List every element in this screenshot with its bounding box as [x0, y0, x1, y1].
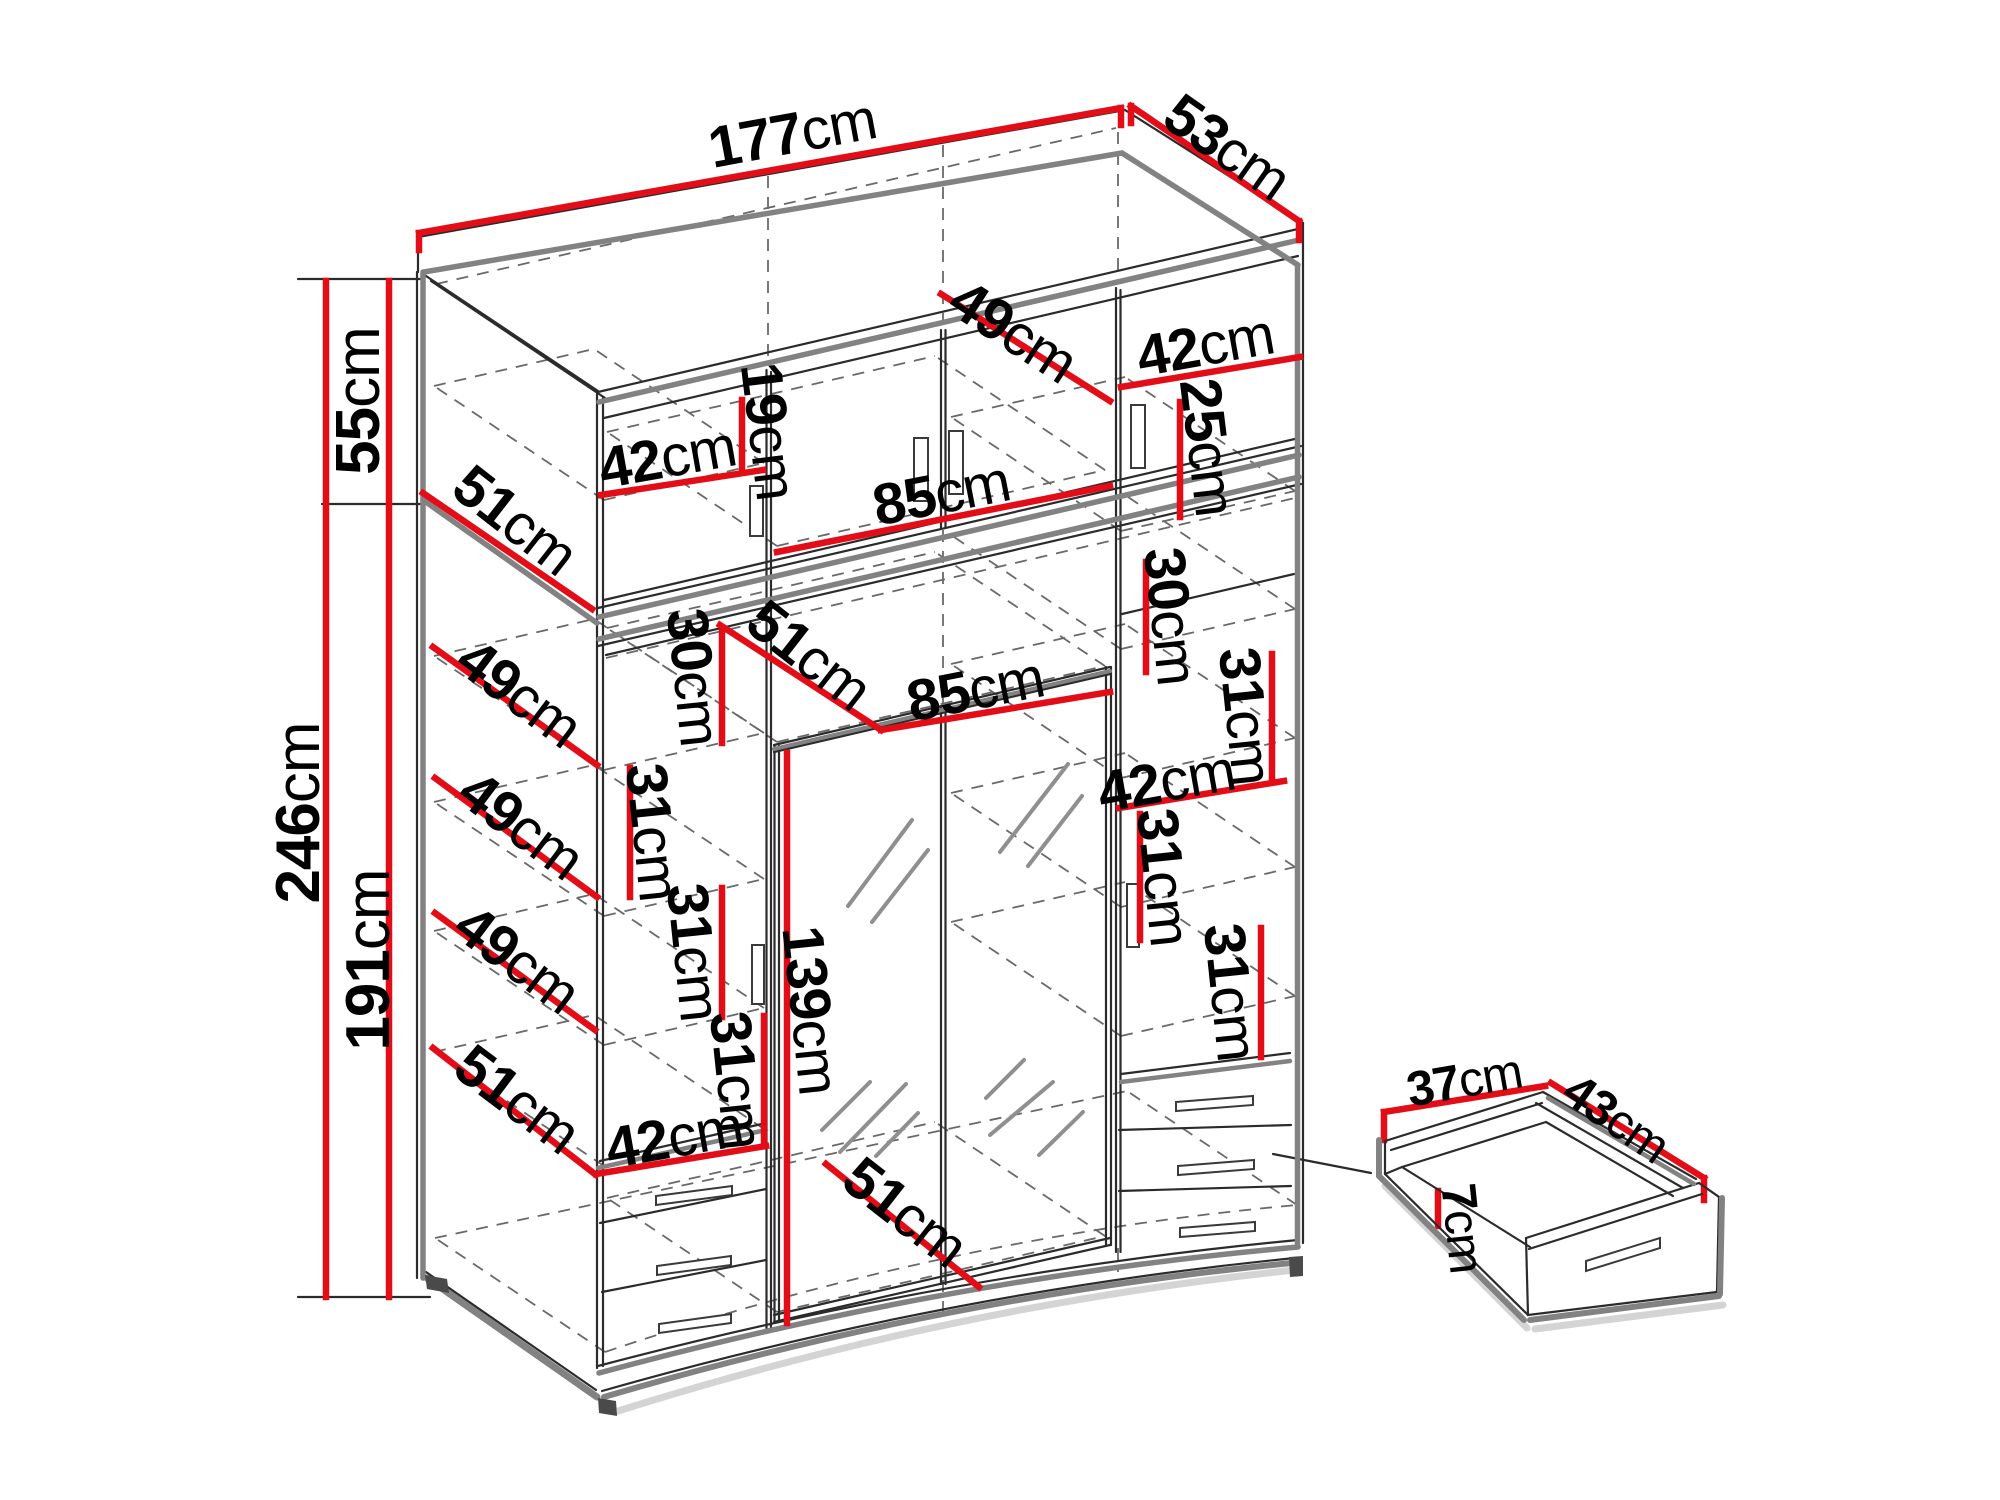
svg-text:191cm: 191cm: [334, 869, 403, 1050]
svg-text:55cm: 55cm: [324, 327, 393, 475]
svg-text:246cm: 246cm: [264, 722, 333, 903]
svg-text:7cm: 7cm: [1430, 1181, 1493, 1276]
